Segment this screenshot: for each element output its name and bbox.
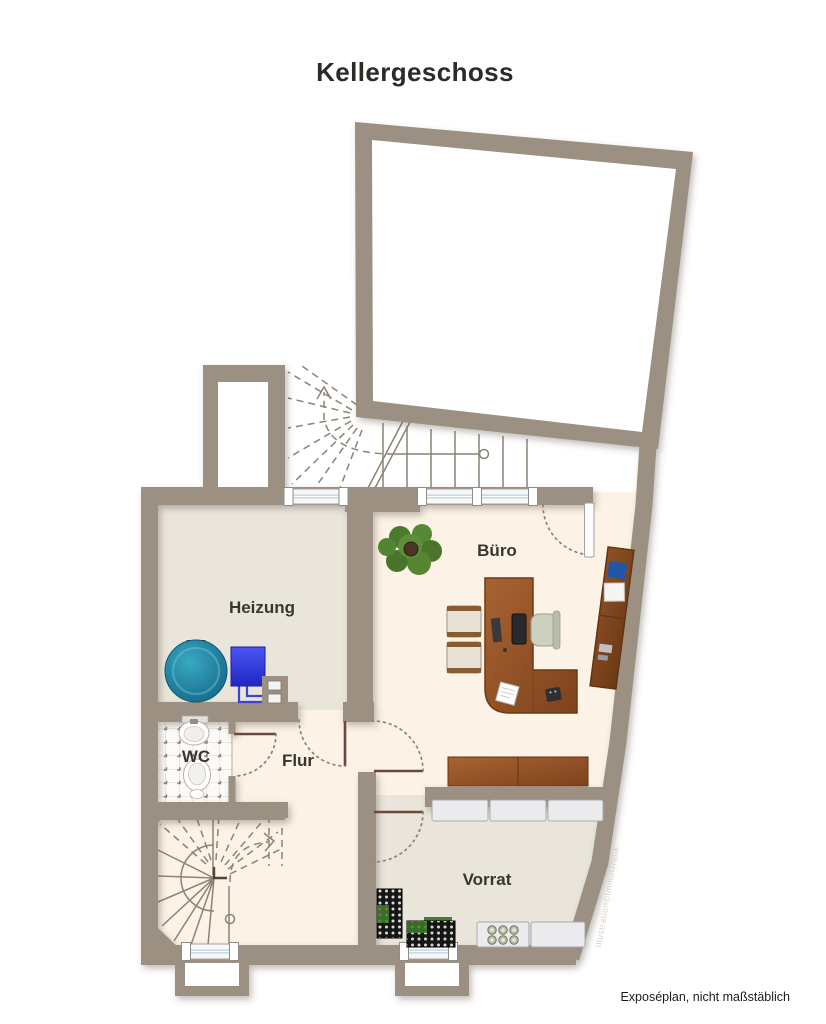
monitor-icon [512, 614, 526, 644]
room-buero-label: Büro [477, 541, 517, 560]
desk-accessory-icon [545, 687, 562, 702]
sink-symbol [179, 716, 209, 745]
floorplan-canvas: Kellergeschoss Heizung Büro WC Flur Vorr… [0, 0, 826, 1024]
cabinet-bottom-right [531, 922, 585, 947]
wine-rack-vertical [377, 889, 402, 938]
window-stairs [182, 943, 239, 961]
mouse-icon [503, 648, 507, 652]
window-heizung [284, 488, 348, 506]
office-chair-symbol [531, 611, 560, 649]
boiler-symbol [165, 640, 227, 702]
floorplan-page: Kellergeschoss Heizung Büro WC Flur Vorr… [0, 0, 826, 1024]
caption: Exposéplan, nicht maßstäblich [620, 990, 790, 1004]
guest-chair-2 [447, 642, 481, 673]
lightwell-right [395, 960, 469, 996]
heater-symbol [231, 647, 265, 686]
room-heizung-label: Heizung [229, 598, 295, 617]
wall-pillar [345, 487, 420, 512]
wine-rack-horizontal [407, 917, 455, 947]
guest-chair-1 [447, 606, 481, 637]
window-buero [418, 488, 538, 506]
cabinet-row-top [432, 800, 603, 821]
shaft-interior [218, 382, 268, 492]
room-vorrat-label: Vorrat [463, 870, 512, 889]
jar-shelf-symbol [477, 922, 529, 947]
room-flur-label: Flur [282, 751, 314, 770]
papers-icon [496, 682, 519, 705]
page-title: Kellergeschoss [316, 57, 514, 87]
room-wc-label: WC [182, 747, 210, 766]
lightwell-left [175, 960, 249, 996]
sideboard-symbol [448, 757, 588, 786]
top-room-interior [372, 140, 676, 432]
